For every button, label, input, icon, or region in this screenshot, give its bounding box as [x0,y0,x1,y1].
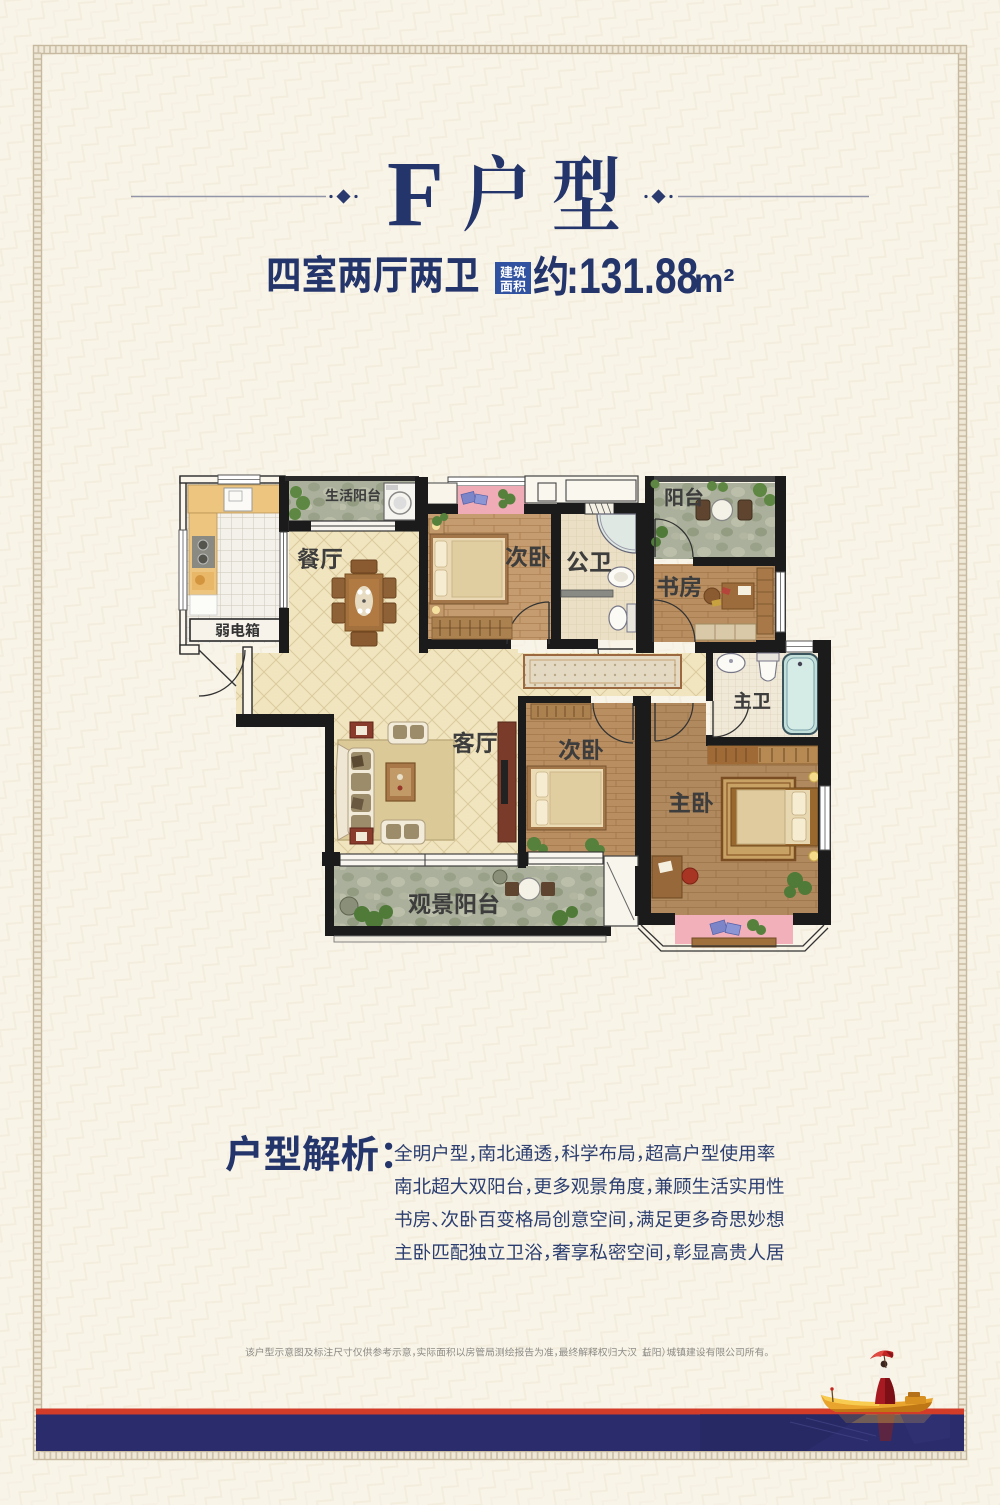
svg-text:m²: m² [694,262,734,299]
svg-text::131.88: :131.88 [566,247,698,304]
svg-text:F: F [387,143,444,246]
